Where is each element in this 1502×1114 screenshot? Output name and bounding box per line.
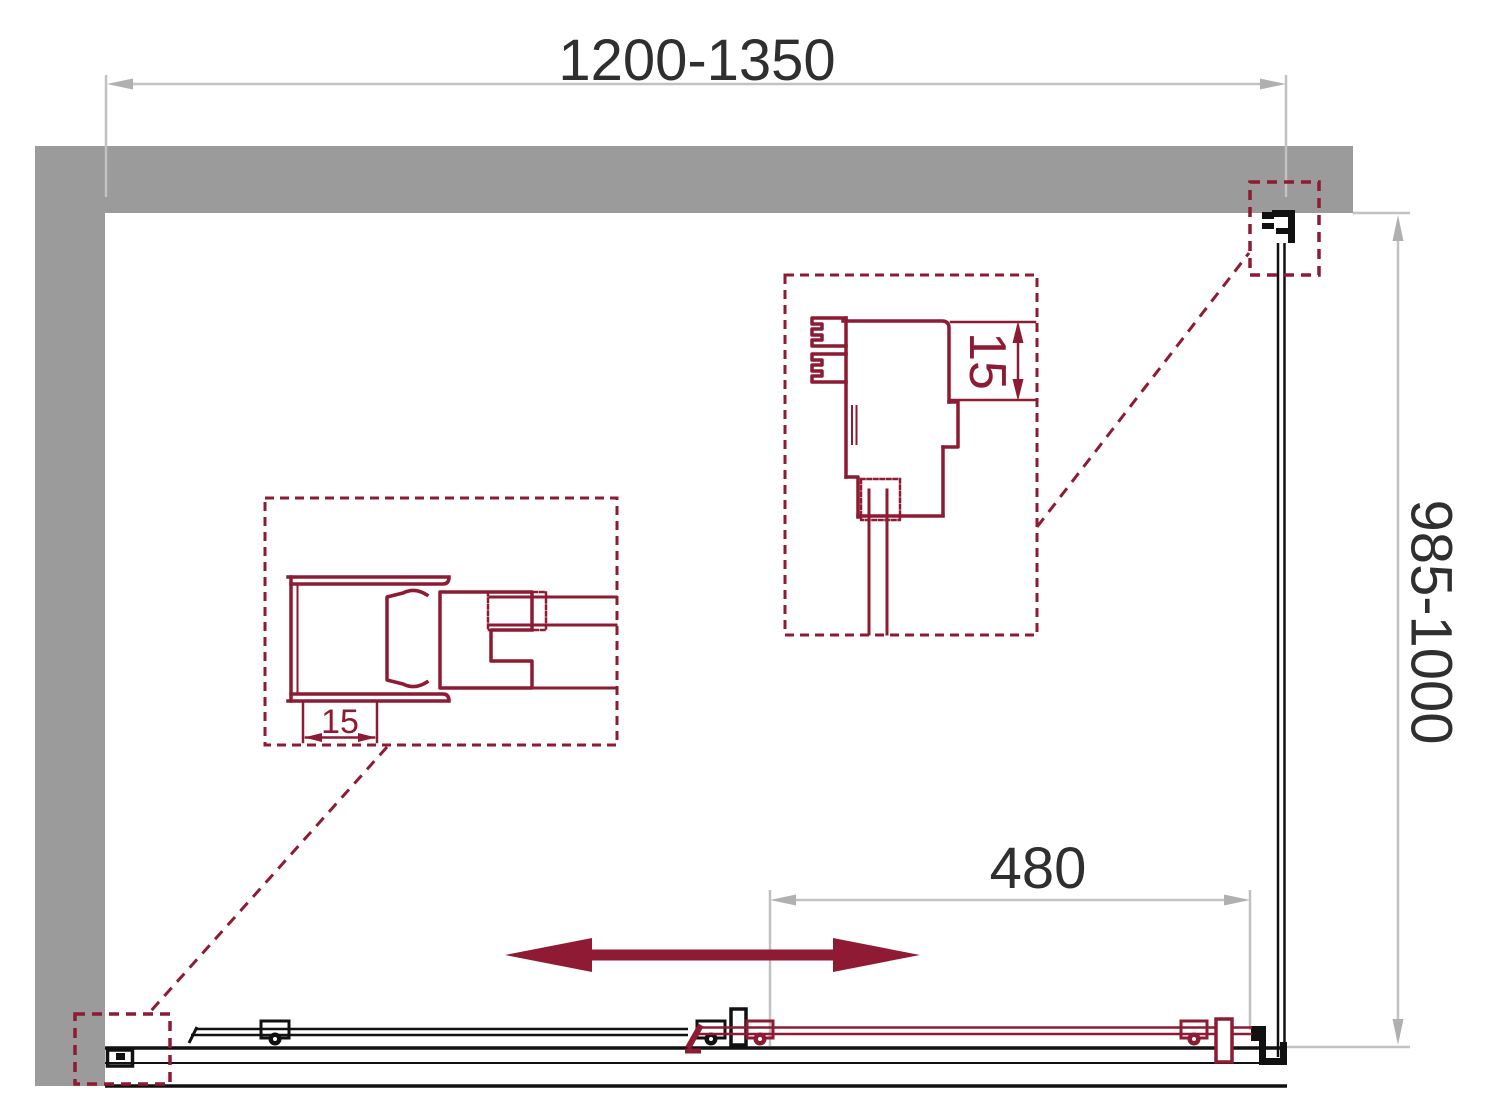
arrow-left-icon (304, 733, 322, 742)
guide-block-maroon (1216, 1019, 1232, 1062)
c-channel (387, 590, 427, 686)
shower-enclosure-plan-drawing: 1200-1350 985-1000 480 (0, 0, 1502, 1114)
roller-axle-icon (709, 1037, 713, 1041)
arrow-up-icon (1393, 215, 1404, 241)
left-wall (35, 146, 105, 1086)
arrow-right-icon (1260, 79, 1286, 90)
profile-top-right (843, 321, 949, 402)
top-right-wall-bracket (1262, 210, 1295, 243)
arrow-right-icon (358, 733, 376, 742)
detail-left-dimension-label: 15 (321, 703, 359, 741)
opening-dimension-label: 480 (990, 836, 1087, 901)
wall-comb-tab (812, 318, 846, 346)
depth-dimension-label: 985-1000 (1399, 499, 1464, 744)
slider-end-cap (1251, 1026, 1260, 1041)
top-wall (35, 146, 1353, 213)
dimension-lines (106, 75, 1410, 1047)
detail-left-door-profile: 15 (288, 577, 616, 742)
arrow-left-icon (107, 79, 133, 90)
arrow-right-icon (1224, 895, 1250, 906)
left-wall-bracket-tab (116, 1053, 125, 1060)
detail-right-dimension-label: 15 (958, 332, 1016, 390)
arrow-down-icon (1393, 1019, 1404, 1045)
gasket-serration (861, 479, 900, 520)
walls (35, 146, 1353, 1086)
glass-section-lines (869, 490, 887, 634)
detail-right-wall-profile: 15 (812, 318, 1035, 634)
technical-drawing-canvas: 1200-1350 985-1000 480 (0, 0, 1502, 1114)
profile-inner-tab (852, 406, 857, 444)
arrow-left-icon (770, 895, 796, 906)
callouts (75, 182, 1319, 1084)
roller-axle-icon (273, 1037, 277, 1041)
glass-section-lines (490, 597, 616, 625)
profile-left-step (846, 477, 858, 517)
leader-line-right (1037, 253, 1249, 527)
profile-bottom-bar (288, 694, 449, 701)
roller-axle-icon (1192, 1037, 1196, 1041)
leader-line-left (150, 747, 387, 1012)
profile-top-bar (288, 577, 449, 584)
slide-direction-double-arrow-icon (505, 938, 920, 972)
width-dimension-label: 1200-1350 (558, 28, 835, 93)
bottom-right-corner-bracket (1259, 1026, 1287, 1065)
profile-right-step (943, 402, 958, 447)
inner-channel (440, 592, 532, 688)
roller-axle-icon (758, 1037, 762, 1041)
wall-comb-tab (812, 354, 846, 382)
